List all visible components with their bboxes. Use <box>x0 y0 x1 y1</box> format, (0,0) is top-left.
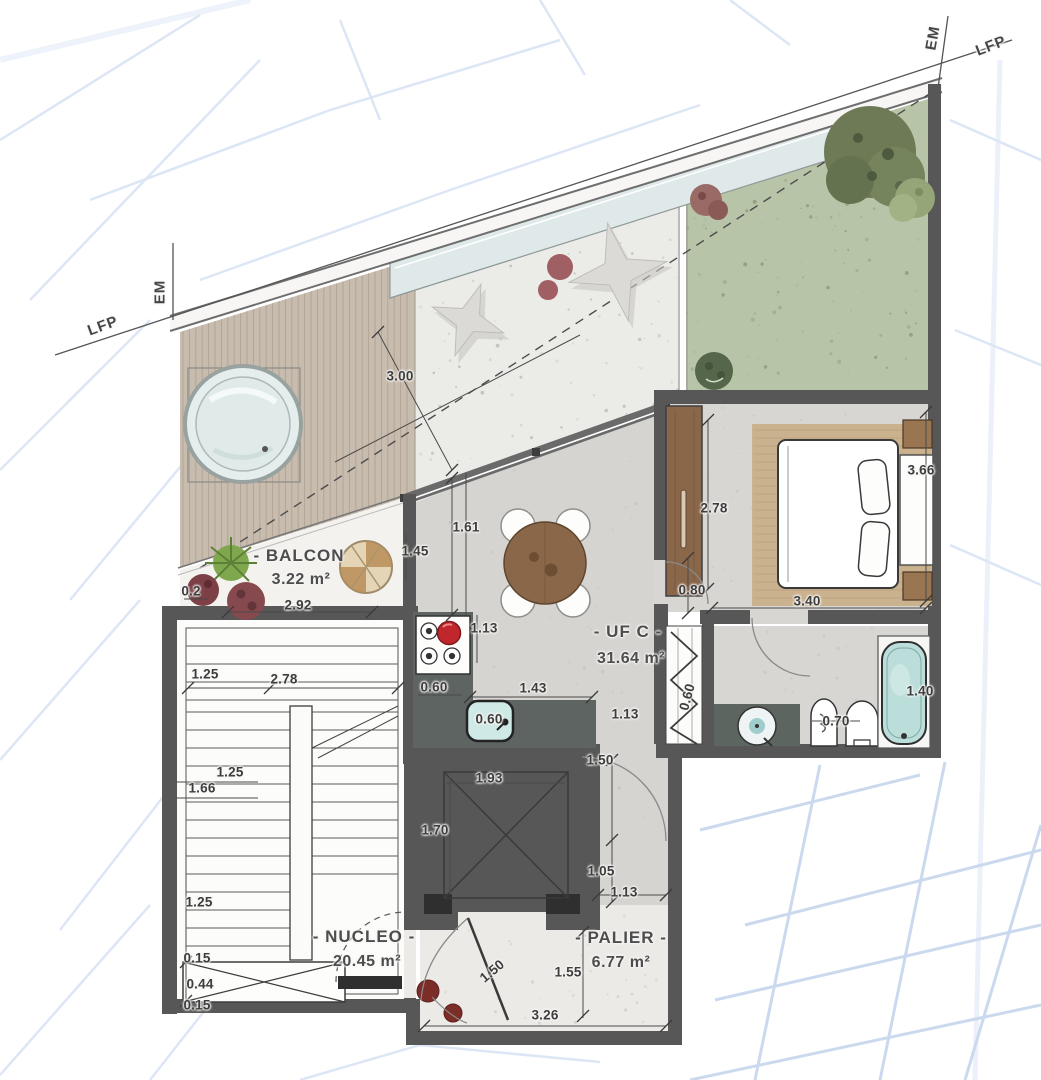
red-dot-ornament <box>538 280 558 300</box>
dim-bedroom-depth: 2.78 <box>700 501 727 516</box>
dim-stairs-low: 1.25 <box>185 895 212 910</box>
pillow <box>858 521 891 577</box>
dim-bidet-width: 0.70 <box>822 714 849 729</box>
marker-em-left: EM <box>152 280 169 305</box>
room-area-nucleo: 20.45 m² <box>333 953 401 971</box>
elevator-jamb-left <box>424 894 452 914</box>
drain-icon <box>901 733 907 739</box>
dim-duct-bottom: 0.15 <box>183 998 210 1013</box>
dim-terrace-depth: 3.00 <box>386 369 413 384</box>
dim-hall-passage: 1.13 <box>611 707 638 722</box>
dim-bedroom-door: 0.80 <box>678 583 705 598</box>
stair-spine <box>290 706 312 960</box>
floor-plan-drawing <box>0 0 1041 1080</box>
pillow <box>857 459 890 516</box>
dim-balcon-width: 2.92 <box>284 598 311 613</box>
toilet <box>846 701 878 746</box>
room-label-palier: - PALIER - <box>575 928 667 948</box>
pouf <box>340 541 392 593</box>
wardrobe-handle <box>681 490 686 548</box>
red-plant <box>417 980 439 1002</box>
dim-duct-top: 0.15 <box>183 951 210 966</box>
dim-bathtub-length: 1.40 <box>906 684 933 699</box>
dim-palier-depth: 1.55 <box>554 965 581 980</box>
dim-kitchen-counter: 0.60 <box>420 680 447 695</box>
maroon-bush <box>227 582 265 620</box>
room-label-uf-c: - UF C - <box>594 622 662 642</box>
dim-hall-length: 1.05 <box>587 864 614 879</box>
dim-duct-height: 0.44 <box>186 977 213 992</box>
dim-bedroom-length: 3.66 <box>907 463 934 478</box>
dim-bedroom-width: 3.40 <box>793 594 820 609</box>
dim-stairs-top: 1.25 <box>191 667 218 682</box>
red-dot-ornament <box>547 254 573 280</box>
dim-stairs-mid: 1.25 <box>216 765 243 780</box>
nightstand <box>903 420 932 448</box>
room-area-balcon: 3.22 m² <box>272 571 331 589</box>
dim-hall-width: 1.13 <box>610 885 637 900</box>
dim-elevator-width: 1.93 <box>475 771 502 786</box>
dining-set <box>501 509 590 617</box>
dim-sink-width: 0.60 <box>475 712 502 727</box>
room-label-balcon: - BALCON <box>253 546 344 566</box>
nightstand <box>903 572 932 600</box>
room-area-uf-c: 31.64 m² <box>597 650 665 668</box>
dim-stairs-span: 2.78 <box>270 672 297 687</box>
floor-plan-canvas: LFP EM EM LFP - BALCON 3.22 m² - UF C - … <box>0 0 1041 1080</box>
dim-palier-width: 3.26 <box>531 1008 558 1023</box>
dim-kitchen-run: 1.43 <box>519 681 546 696</box>
dim-balcon-side: 0.2 <box>181 584 200 599</box>
dim-elevator-depth: 1.70 <box>421 823 448 838</box>
dim-hall-door: 1.50 <box>586 753 613 768</box>
corner-tree <box>695 352 733 390</box>
room-label-nucleo: - NUCLEO - <box>313 927 416 947</box>
elevator-jamb-right <box>546 894 580 914</box>
jacuzzi <box>185 366 301 482</box>
dim-stairs-run: 1.66 <box>188 781 215 796</box>
dim-balcon-dim: 1.45 <box>401 544 428 559</box>
room-area-palier: 6.77 m² <box>592 954 651 972</box>
entry-door-leaf <box>338 976 402 989</box>
dim-kitchen-depth: 1.13 <box>470 621 497 636</box>
dim-living-height: 1.61 <box>452 520 479 535</box>
